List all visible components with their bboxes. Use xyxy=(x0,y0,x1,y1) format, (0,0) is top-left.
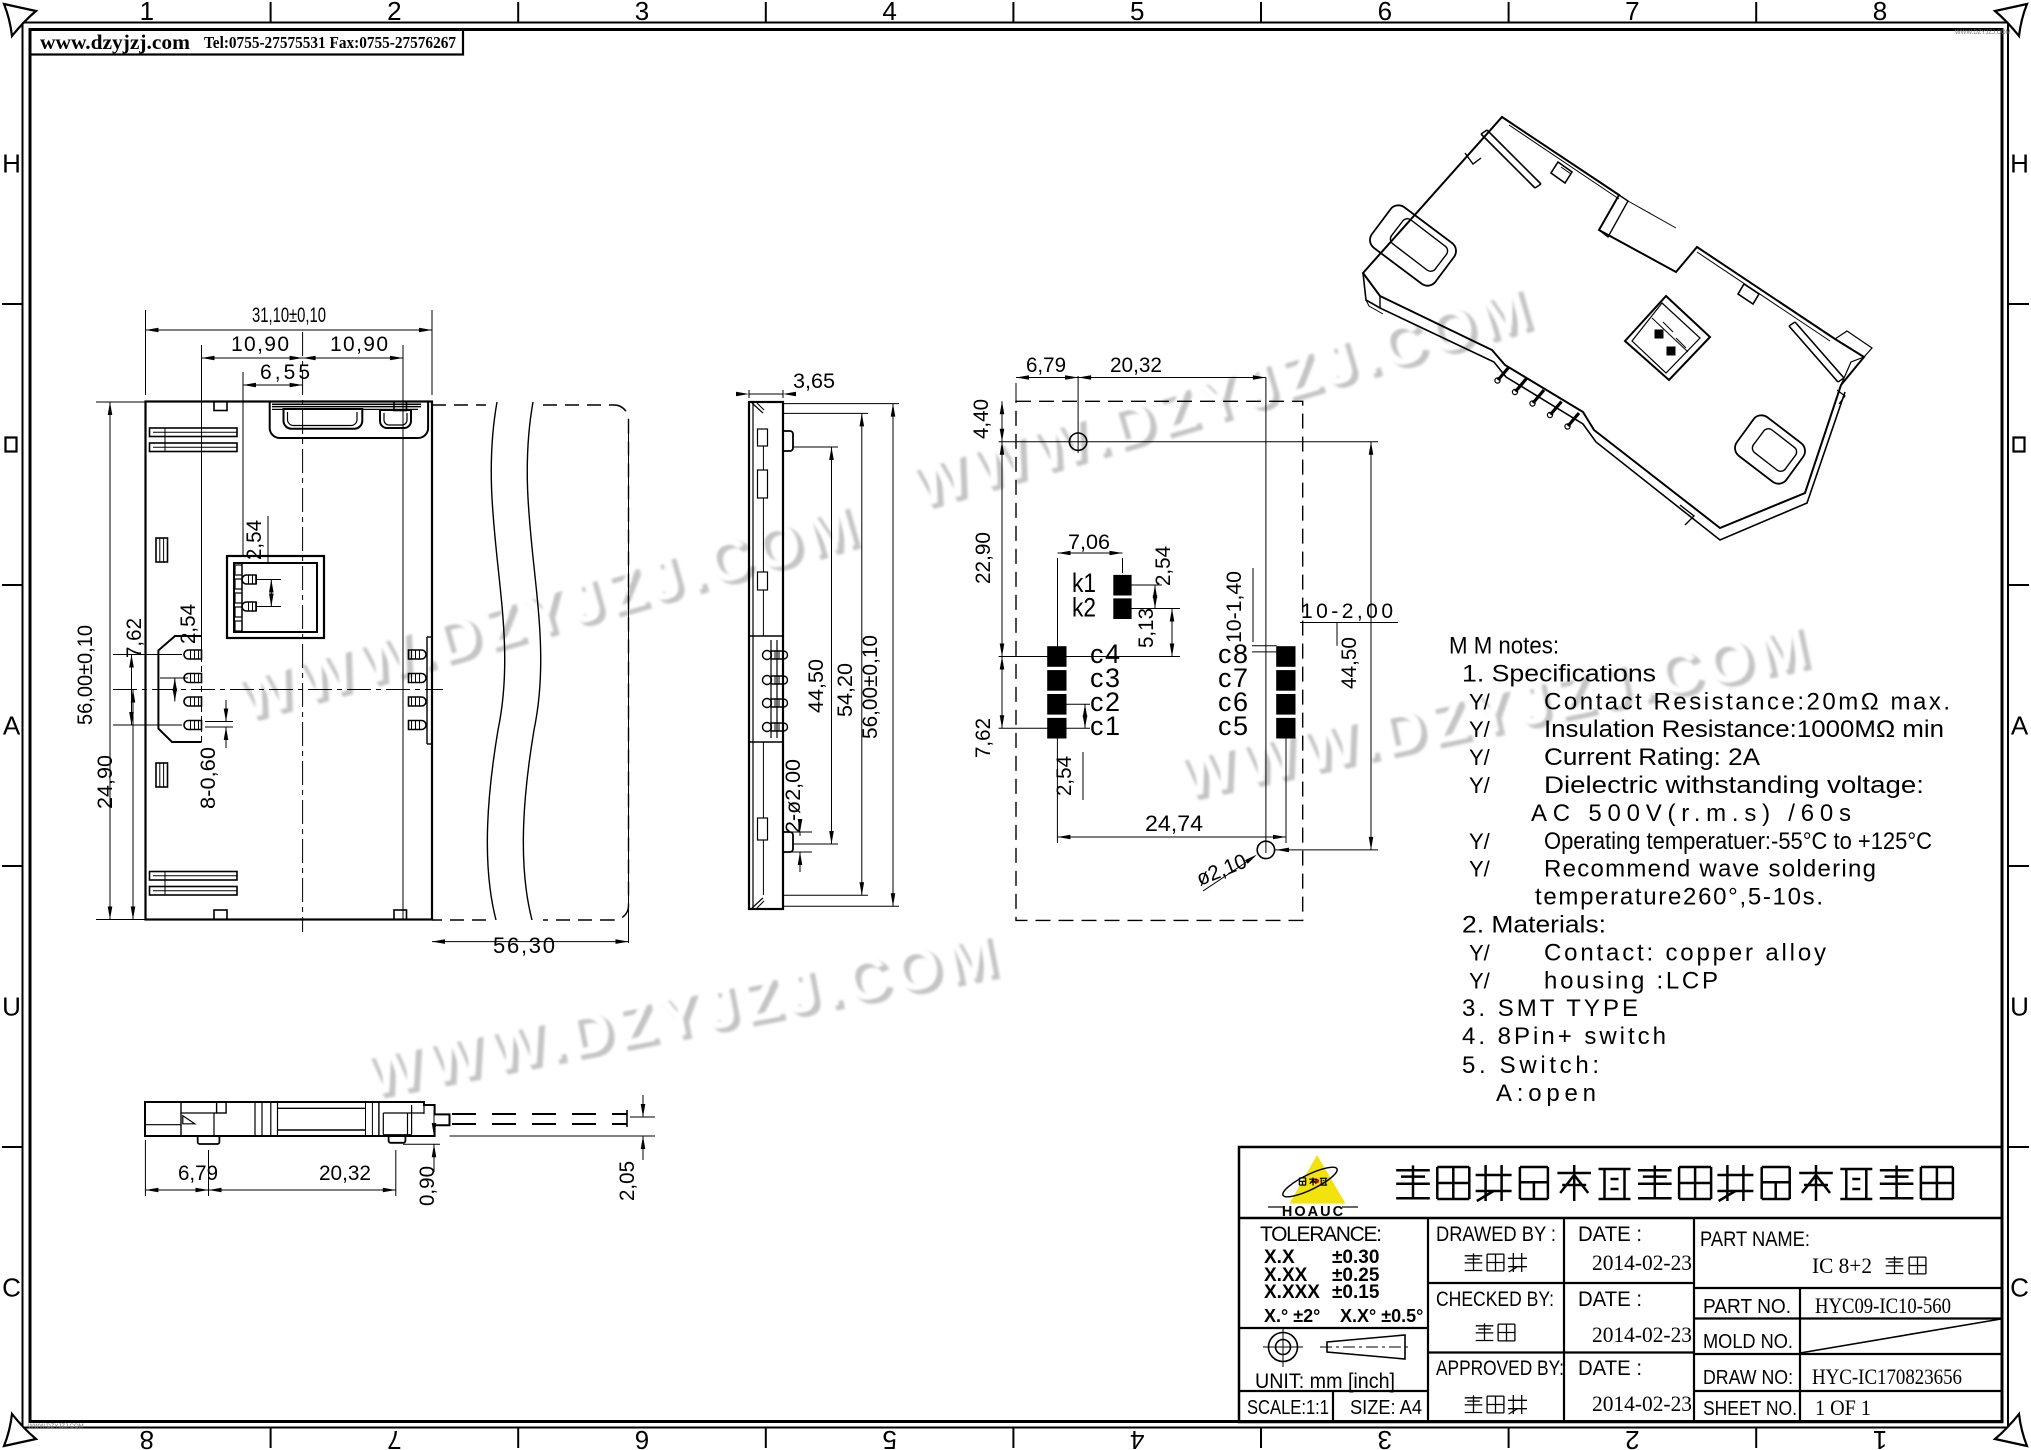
svg-text:APPROVED BY:: APPROVED BY: xyxy=(1436,1357,1564,1380)
svg-text:U: U xyxy=(2,992,21,1022)
svg-text:4: 4 xyxy=(882,0,896,26)
svg-text:7,62: 7,62 xyxy=(123,618,146,658)
svg-text:7: 7 xyxy=(387,1425,401,1450)
svg-text:Recommend wave soldering: Recommend wave soldering xyxy=(1544,856,1876,883)
svg-text:Insulation Resistance:1000MΩ m: Insulation Resistance:1000MΩ min xyxy=(1544,716,1944,743)
svg-text:WWW.DZYJZJ.COM: WWW.DZYJZJ.COM xyxy=(28,1424,84,1430)
svg-text:4: 4 xyxy=(1130,1425,1144,1450)
svg-text:24,74: 24,74 xyxy=(1145,811,1203,836)
svg-text:Y/: Y/ xyxy=(1469,773,1491,798)
svg-text:Y/: Y/ xyxy=(1469,829,1491,854)
svg-text:Tel:0755-27575531 Fax:0755-27: Tel:0755-27575531 Fax:0755-27576267 xyxy=(204,33,456,52)
svg-text:PART NAME:: PART NAME: xyxy=(1700,1228,1810,1251)
svg-text:Y/: Y/ xyxy=(1469,857,1491,882)
svg-text:c1: c1 xyxy=(1090,711,1120,741)
svg-text:DRAWED BY :: DRAWED BY : xyxy=(1436,1223,1556,1246)
svg-text:22,90: 22,90 xyxy=(972,532,995,584)
svg-text:2: 2 xyxy=(1625,1425,1639,1450)
svg-text:www.dzyjzj.com: www.dzyjzj.com xyxy=(40,30,191,54)
svg-text:M M notes:: M M notes: xyxy=(1449,633,1559,660)
svg-text:20,32: 20,32 xyxy=(1110,354,1162,377)
svg-text:5: 5 xyxy=(1130,0,1144,26)
svg-text:Y/: Y/ xyxy=(1469,745,1491,770)
svg-text:HYC09-IC10-560: HYC09-IC10-560 xyxy=(1815,1293,1951,1318)
svg-text:Contact: copper alloy: Contact: copper alloy xyxy=(1544,939,1826,966)
svg-text:1: 1 xyxy=(1873,1425,1887,1450)
svg-text:TOLERANCE:: TOLERANCE: xyxy=(1260,1223,1382,1246)
svg-text:C: C xyxy=(2010,1273,2029,1303)
svg-text:8-0,60: 8-0,60 xyxy=(197,747,220,809)
svg-text:5,13: 5,13 xyxy=(1135,608,1158,648)
svg-text:temperature260°,5-10s.: temperature260°,5-10s. xyxy=(1535,884,1823,911)
svg-text:1. Specifications: 1. Specifications xyxy=(1462,660,1656,687)
svg-text:44,50: 44,50 xyxy=(805,659,828,713)
svg-text:7: 7 xyxy=(1625,0,1639,26)
svg-text:Dielectric withstanding voltag: Dielectric withstanding voltage: xyxy=(1544,772,1924,799)
svg-text:6,79: 6,79 xyxy=(178,1162,218,1185)
svg-text:PART NO.: PART NO. xyxy=(1703,1296,1791,1318)
svg-text:8: 8 xyxy=(140,1425,154,1450)
svg-text:X.° ±2°: X.° ±2° xyxy=(1264,1306,1320,1326)
svg-text:0,90: 0,90 xyxy=(416,1166,439,1206)
svg-text:H: H xyxy=(2,149,21,179)
svg-text:4,40: 4,40 xyxy=(970,399,993,439)
svg-text:10,90: 10,90 xyxy=(231,333,289,356)
svg-text:2,05: 2,05 xyxy=(616,1161,639,1201)
svg-text:Y/: Y/ xyxy=(1469,717,1491,742)
svg-text:±0.15: ±0.15 xyxy=(1332,1282,1380,1303)
svg-text:2,54: 2,54 xyxy=(1053,756,1076,796)
svg-text:10-1,40: 10-1,40 xyxy=(1223,571,1246,643)
svg-text:A: A xyxy=(3,711,21,741)
svg-text:c5: c5 xyxy=(1218,711,1248,741)
svg-text:Y/: Y/ xyxy=(1469,940,1491,965)
svg-text:6,79: 6,79 xyxy=(1026,354,1066,377)
svg-text:IC 8+2: IC 8+2 xyxy=(1812,1253,1872,1278)
svg-text:2014-02-23: 2014-02-23 xyxy=(1592,1391,1692,1416)
svg-text:2. Materials:: 2. Materials: xyxy=(1462,912,1606,939)
svg-text:56,00±0,10: 56,00±0,10 xyxy=(74,625,97,725)
svg-text:A: A xyxy=(2011,711,2029,741)
svg-text:X.XXX: X.XXX xyxy=(1264,1282,1320,1303)
svg-text:DRAW NO:: DRAW NO: xyxy=(1703,1367,1793,1389)
svg-text:3,65: 3,65 xyxy=(793,370,835,393)
svg-text:U: U xyxy=(2010,992,2029,1022)
svg-text:Operating temperatuer:-55°C to: Operating temperatuer:-55°C to +125°C xyxy=(1544,828,1932,855)
svg-text:DATE :: DATE : xyxy=(1578,1288,1642,1311)
svg-text:44,50: 44,50 xyxy=(1338,637,1361,689)
svg-text:DATE :: DATE : xyxy=(1578,1357,1642,1380)
svg-text:2,54: 2,54 xyxy=(1152,546,1175,586)
svg-text:1: 1 xyxy=(140,0,154,26)
svg-text:6,55: 6,55 xyxy=(260,361,310,384)
svg-text:k2: k2 xyxy=(1072,593,1096,623)
svg-text:UNIT: mm [inch]: UNIT: mm [inch] xyxy=(1255,1370,1395,1393)
svg-text:3: 3 xyxy=(635,0,649,26)
svg-text:31,10±0,10: 31,10±0,10 xyxy=(252,304,326,327)
svg-text:SCALE:1:1: SCALE:1:1 xyxy=(1247,1397,1329,1419)
svg-text:C: C xyxy=(2,1273,21,1303)
svg-text:2014-02-23: 2014-02-23 xyxy=(1592,1322,1692,1347)
svg-text:54,20: 54,20 xyxy=(834,663,857,717)
svg-text:2: 2 xyxy=(387,0,401,26)
svg-text:7,06: 7,06 xyxy=(1068,531,1110,554)
svg-text:20,32: 20,32 xyxy=(319,1162,371,1185)
svg-text:Y/: Y/ xyxy=(1469,689,1491,714)
svg-text:Y/: Y/ xyxy=(1469,968,1491,993)
svg-text:MOLD NO.: MOLD NO. xyxy=(1703,1331,1793,1353)
svg-text:3. SMT TYPE: 3. SMT TYPE xyxy=(1462,995,1638,1022)
svg-text:5. Switch:: 5. Switch: xyxy=(1462,1052,1599,1079)
svg-text:7,62: 7,62 xyxy=(972,718,995,758)
svg-text:CHECKED BY:: CHECKED BY: xyxy=(1436,1288,1554,1311)
svg-text:2,54: 2,54 xyxy=(243,520,266,560)
svg-text:housing :LCP: housing :LCP xyxy=(1544,967,1718,994)
svg-text:WWW.DZYJZJ.COM: WWW.DZYJZJ.COM xyxy=(1955,30,2011,36)
svg-text:3: 3 xyxy=(1378,1425,1392,1450)
svg-text:HOAUC: HOAUC xyxy=(1282,1204,1345,1220)
svg-text:56,30: 56,30 xyxy=(493,933,555,958)
svg-text:6: 6 xyxy=(1378,0,1392,26)
svg-text:1 OF 1: 1 OF 1 xyxy=(1815,1395,1871,1420)
svg-text:2014-02-23: 2014-02-23 xyxy=(1592,1250,1692,1275)
svg-text:6: 6 xyxy=(635,1425,649,1450)
svg-text:SIZE: A4: SIZE: A4 xyxy=(1350,1397,1422,1419)
svg-text:56,00±0,10: 56,00±0,10 xyxy=(859,635,882,739)
svg-text:H: H xyxy=(2010,149,2029,179)
svg-text:5: 5 xyxy=(882,1425,896,1450)
svg-text:X.X° ±0.5°: X.X° ±0.5° xyxy=(1340,1306,1423,1326)
svg-text:2,54: 2,54 xyxy=(177,604,200,644)
svg-text:24,90: 24,90 xyxy=(94,755,117,809)
svg-text:HYC-IC170823656: HYC-IC170823656 xyxy=(1812,1364,1962,1389)
svg-text:Current Rating: 2A: Current Rating: 2A xyxy=(1544,744,1760,771)
svg-text:SHEET NO.: SHEET NO. xyxy=(1703,1398,1797,1420)
svg-text:8: 8 xyxy=(1873,0,1887,26)
svg-text:10,90: 10,90 xyxy=(330,333,388,356)
svg-text:DATE :: DATE : xyxy=(1578,1223,1642,1246)
